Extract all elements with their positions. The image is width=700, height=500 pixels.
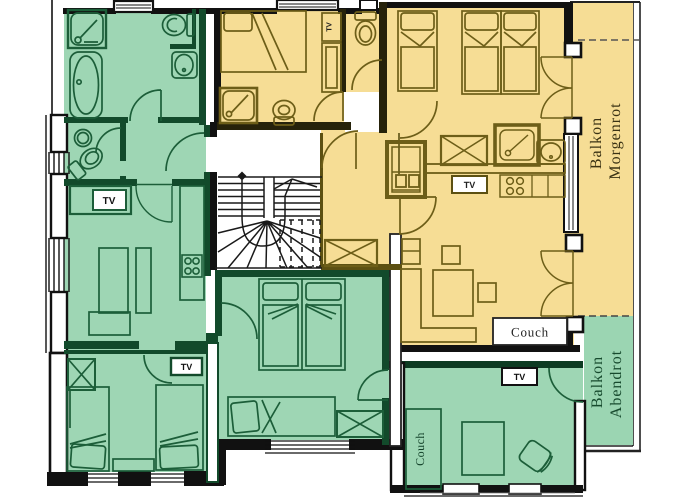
svg-text:TV: TV bbox=[464, 180, 476, 190]
svg-text:Morgenrot: Morgenrot bbox=[607, 102, 624, 179]
svg-text:Balkon: Balkon bbox=[589, 356, 606, 408]
svg-text:Balkon: Balkon bbox=[588, 117, 605, 169]
svg-text:TV: TV bbox=[325, 22, 334, 32]
svg-text:Abendrot: Abendrot bbox=[608, 350, 625, 418]
svg-text:TV: TV bbox=[181, 362, 193, 372]
svg-text:Couch: Couch bbox=[511, 325, 549, 340]
svg-text:TV: TV bbox=[514, 372, 526, 382]
svg-text:Couch: Couch bbox=[413, 432, 427, 466]
svg-text:TV: TV bbox=[103, 196, 116, 207]
